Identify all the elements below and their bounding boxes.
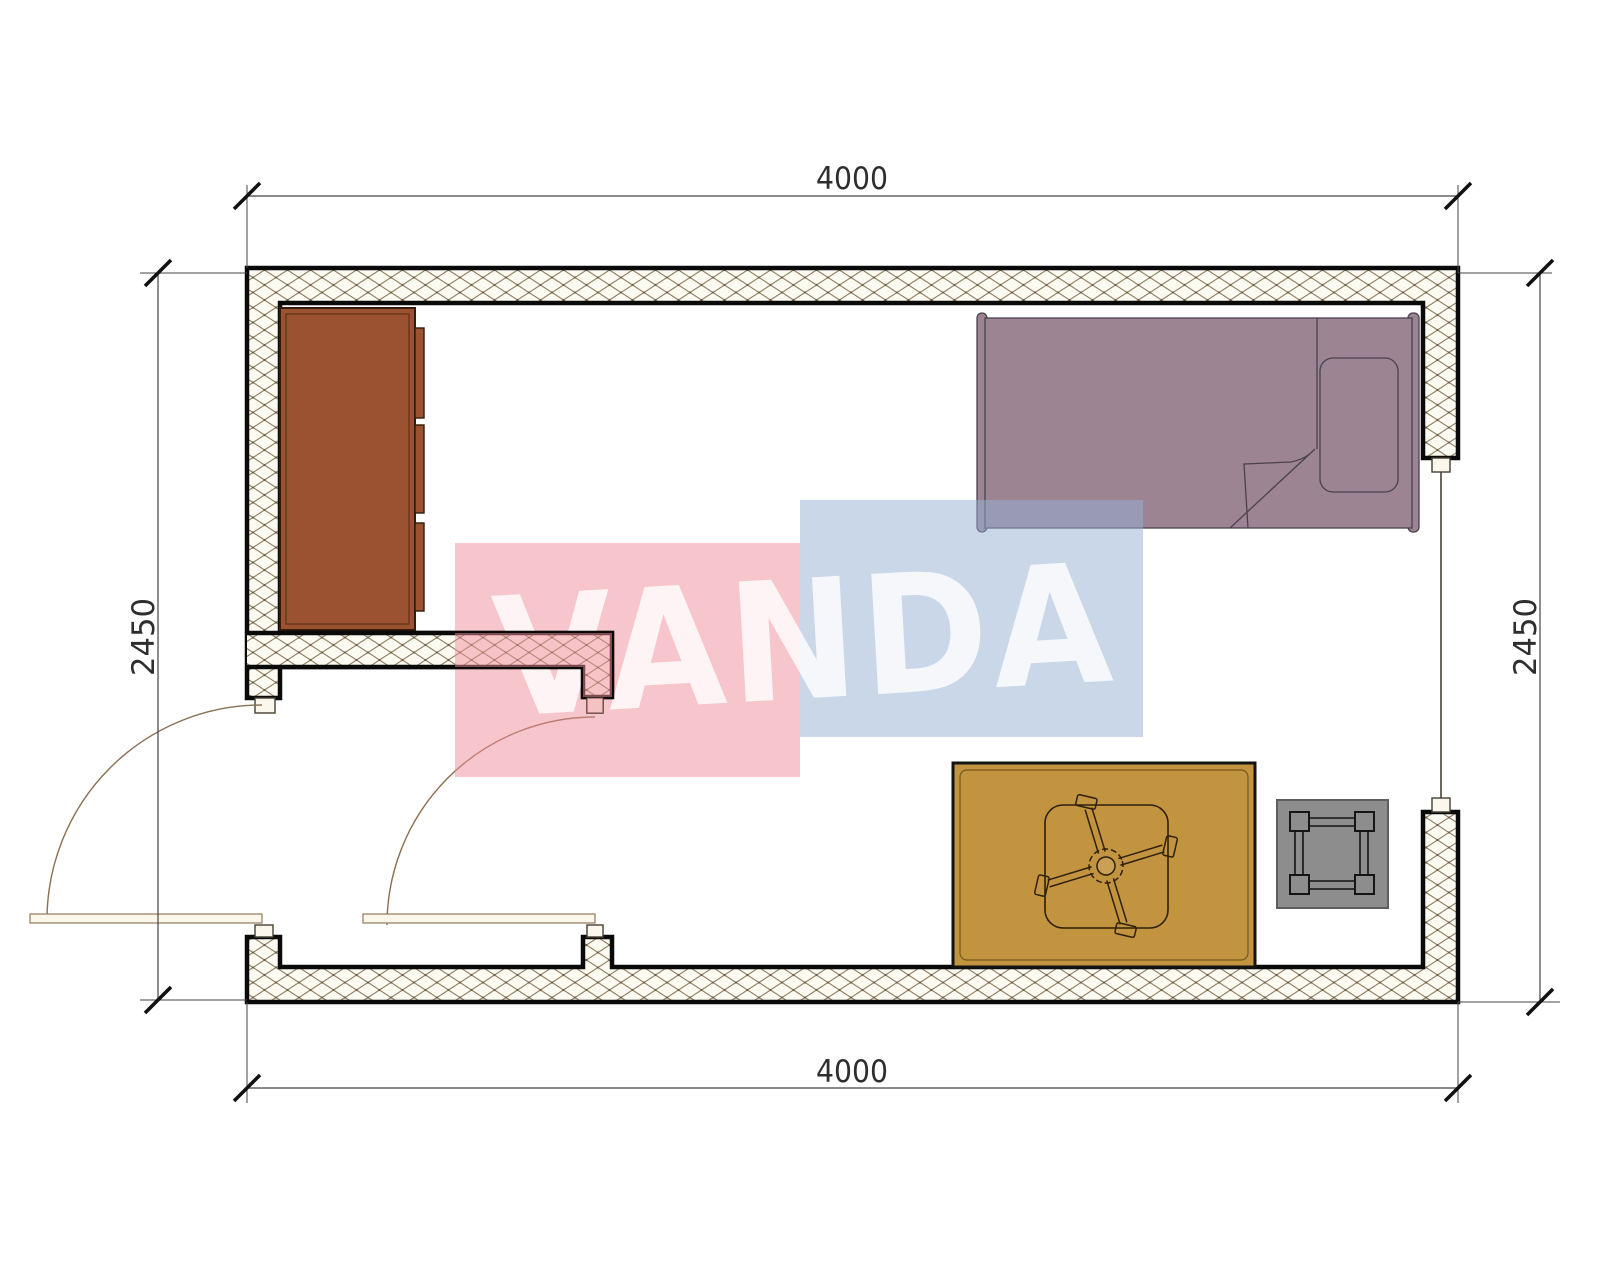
wardrobe-body [280,308,415,630]
window-top-cap [1432,458,1450,472]
stool [1277,800,1388,908]
door2-bottom-cap [587,925,603,937]
door2-top-cap-tint [587,698,603,713]
door1-leaf [30,914,262,923]
extension-lines [247,185,1458,273]
dimension-label-top: 4000 [816,161,888,197]
dimension-label-left: 2450 [126,598,162,676]
dimension-label-right: 2450 [1508,598,1544,676]
rug-with-chair [953,763,1255,967]
dimension-left: 2450 [126,260,247,1013]
bed [977,313,1419,532]
window-bottom-cap [1432,798,1450,812]
door2-leaf [363,914,595,923]
bed-mattress [985,318,1412,528]
wardrobe-door-panels [415,328,424,611]
dimension-label-bottom: 4000 [816,1054,888,1090]
stool-top [1277,800,1388,908]
dimension-right: 2450 [1458,260,1560,1015]
floor-plan-drawing: 4000 4000 2450 2450 [0,0,1600,1280]
dimension-bottom: 4000 [234,1002,1471,1103]
floor-plan-page: 4000 4000 2450 2450 [0,0,1600,1280]
door1-swing-arc [47,705,262,920]
door1-bottom-cap [255,925,273,937]
wardrobe [280,308,424,630]
dimension-top: 4000 [234,161,1471,273]
